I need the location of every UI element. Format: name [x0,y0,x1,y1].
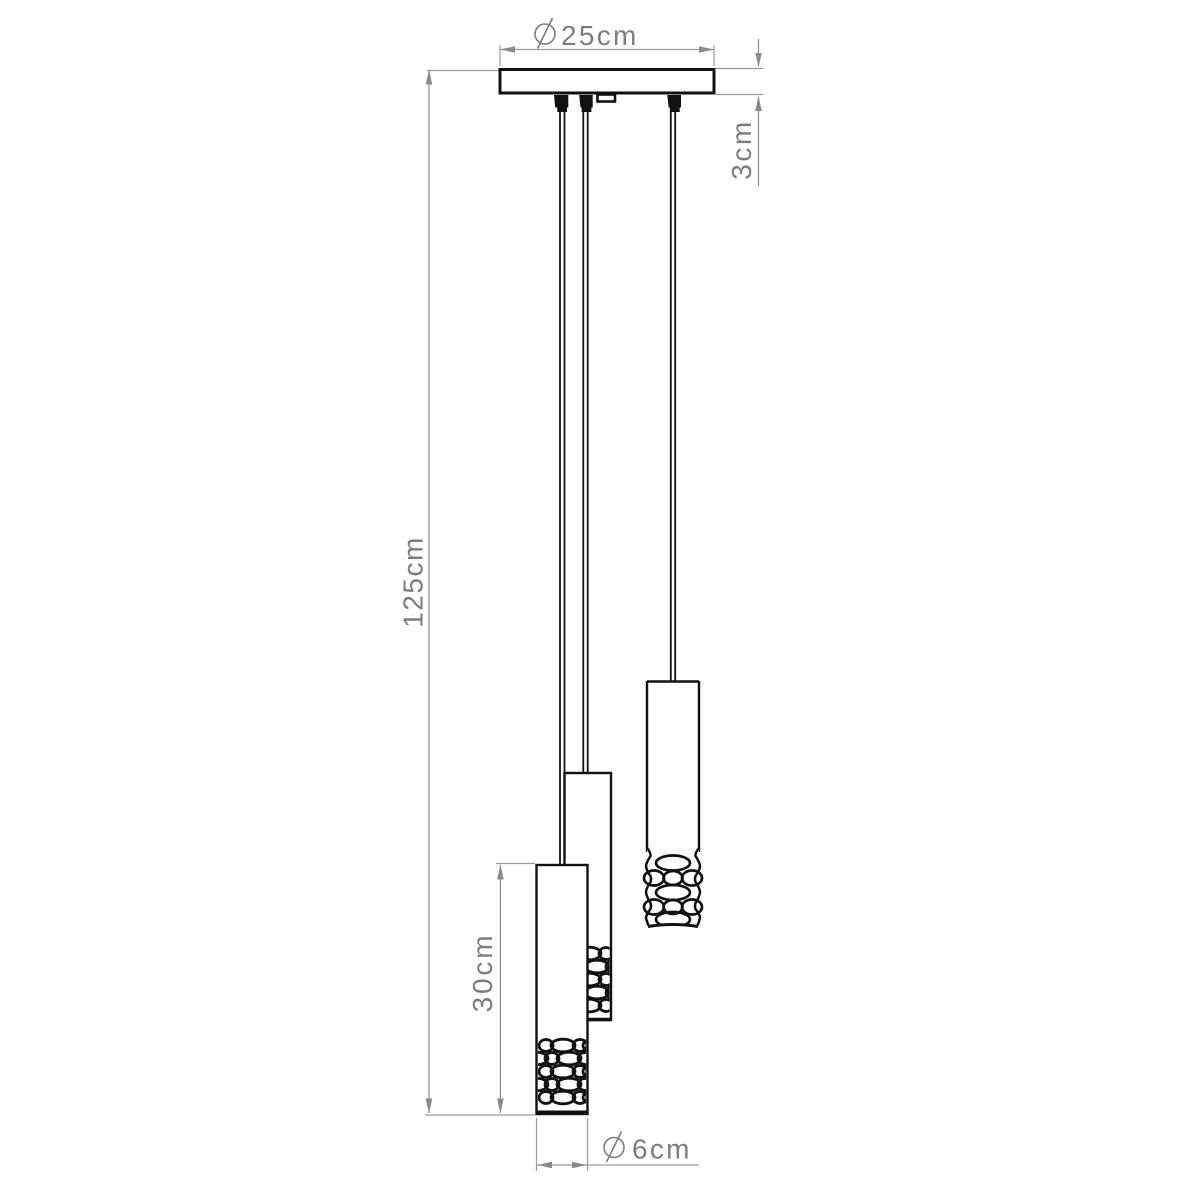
svg-text:3cm: 3cm [726,119,757,179]
svg-text:125cm: 125cm [398,536,429,628]
svg-text:25cm: 25cm [561,20,639,51]
svg-text:6cm: 6cm [632,1134,692,1165]
svg-text:30cm: 30cm [467,933,498,1013]
